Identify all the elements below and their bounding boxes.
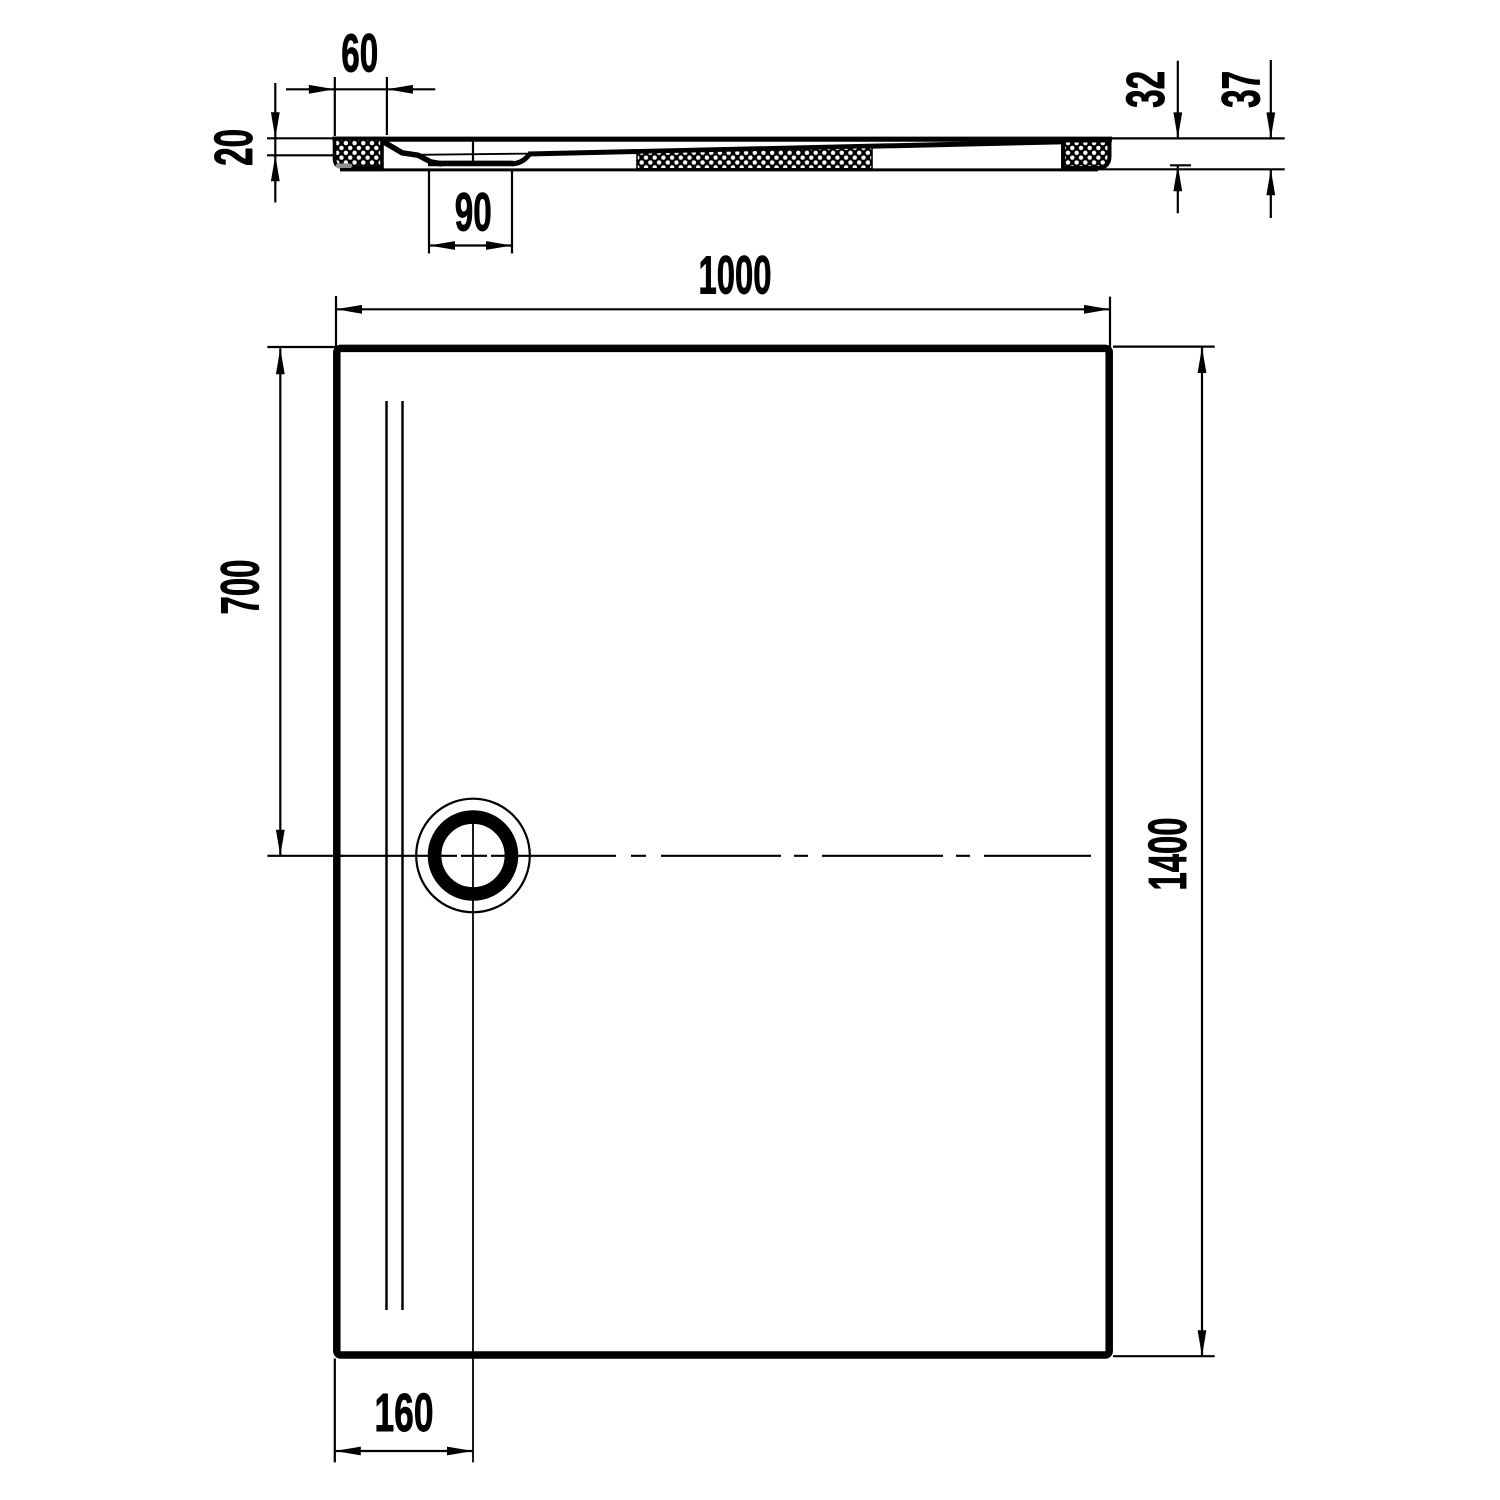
svg-text:37: 37 (1211, 71, 1271, 108)
svg-text:90: 90 (455, 182, 492, 242)
svg-text:32: 32 (1116, 71, 1176, 108)
svg-text:20: 20 (204, 129, 264, 166)
svg-text:1400: 1400 (1138, 818, 1198, 891)
svg-text:1000: 1000 (699, 246, 772, 306)
svg-text:160: 160 (375, 1383, 434, 1443)
svg-text:700: 700 (210, 560, 270, 615)
svg-text:60: 60 (341, 24, 378, 84)
